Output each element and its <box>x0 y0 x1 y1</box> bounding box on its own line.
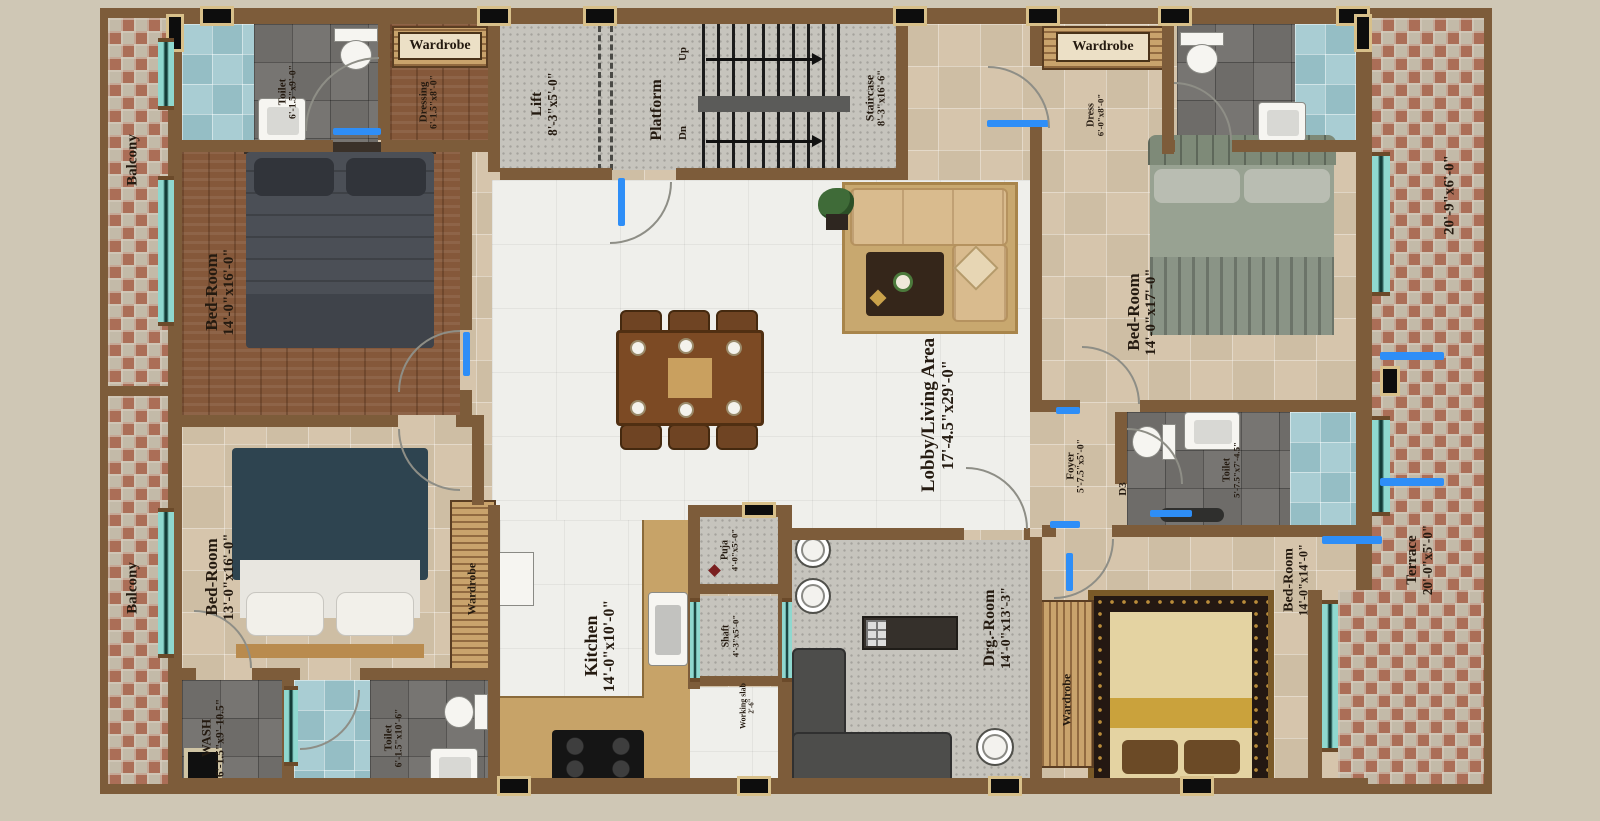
wall-puja-shaft-divider <box>688 584 788 594</box>
wall-toilet-tl-bottom <box>182 140 333 152</box>
door-swing-arc <box>988 66 1050 128</box>
dining-plate <box>726 340 742 356</box>
window <box>158 508 174 658</box>
room-name: Wardrobe <box>1060 674 1073 726</box>
bed-pillow <box>1154 169 1240 203</box>
floor-plan: Balcony Balcony Toilet 6'-1.5"x9'-0" War… <box>0 0 1600 821</box>
dining-plate <box>678 402 694 418</box>
bed-pillow <box>336 592 414 636</box>
bed-bottom-right <box>1088 590 1274 790</box>
door-marker <box>1056 407 1080 414</box>
puja-label: Puja 4'-0"x5'-0" <box>719 529 740 572</box>
terrace-door-lintel <box>1380 366 1400 396</box>
plant-pot <box>826 214 848 230</box>
wash-label: WASH 6'-1.5"x9'-10.5" <box>199 699 226 777</box>
dining-plate <box>726 400 742 416</box>
door-lintel <box>497 776 531 796</box>
wardrobe-bottom-right-label: Wardrobe <box>1060 674 1073 726</box>
bed-base <box>236 644 424 658</box>
room-dims: 20'-0"x5'-0" <box>1421 525 1436 595</box>
wall-liftrow-bottom <box>500 168 612 180</box>
door-lintel <box>1180 776 1214 796</box>
room-dims: 5'-7.5"x7'-4.5" <box>1233 442 1243 498</box>
room-name: Platform <box>648 79 666 140</box>
door-lintel <box>477 6 511 26</box>
room-name: Terrace <box>1404 525 1421 595</box>
dining-plate <box>678 338 694 354</box>
shaft-window <box>782 598 792 682</box>
toilet-top-left-shower-floor <box>182 24 254 142</box>
door-lintel <box>1354 14 1372 52</box>
wall-liftrow-bottom <box>676 168 908 180</box>
room-name: Staircase <box>863 70 876 126</box>
room-dims: 8'-3"x16'-6" <box>877 70 889 126</box>
wall-dress-toilet-tr-divider <box>1162 8 1174 154</box>
room-name: Bed-Room <box>202 533 221 620</box>
room-dims: 14'-0"x10'-0" <box>601 600 619 692</box>
toilet-bowl <box>444 696 474 728</box>
room-dims: 14'-0"x17'-0" <box>1143 268 1160 355</box>
toilet-right-label: Toilet 5'-7.5"x7'-4.5" <box>1221 442 1242 498</box>
staircase-label: Staircase 8'-3"x16'-6" <box>863 70 888 126</box>
platform-label: Platform <box>648 79 666 140</box>
room-name: Kitchen <box>581 600 601 692</box>
room-dims: 6'-1.5"x9'-10.5" <box>214 699 227 777</box>
terrace-label: Terrace 20'-0"x5'-0" <box>1404 525 1436 595</box>
toilet-tank <box>474 694 488 730</box>
wall-foyer-top <box>1140 400 1356 412</box>
stair-dn-label: Dn <box>677 126 689 140</box>
dining-plate <box>630 340 646 356</box>
bed-ribbed-blanket <box>1150 257 1334 335</box>
room-dims: 14'-0"x13'-3" <box>999 587 1015 669</box>
note-dims: 2'-6" <box>749 683 757 729</box>
stove <box>552 730 644 784</box>
wall-terrace-cap <box>1368 784 1492 794</box>
room-name: Bed-Room <box>202 248 221 335</box>
wall-washrow-top <box>182 668 196 680</box>
door-swing-arc <box>398 429 460 491</box>
door-d3-label: D3 <box>1117 482 1129 495</box>
dress-top-right-label: Dress 6'-0"x8'-0" <box>1085 94 1106 137</box>
bed-pillow <box>1184 740 1240 774</box>
wall-foyer-toilet-divider <box>1115 412 1127 484</box>
toilet-right-shower-floor <box>1290 412 1356 525</box>
room-dims: 13'-0"x16'-0" <box>221 533 238 620</box>
door-marker <box>1380 352 1444 360</box>
bed-top-right <box>1148 135 1336 335</box>
wall-bedroom-br-east <box>1308 590 1322 792</box>
wall-kitchen-west <box>488 505 500 792</box>
door-code: D3 <box>1117 482 1129 495</box>
staircase-up-arrowhead <box>812 53 823 65</box>
foyer-label: Foyer 5'-7.5"x5'-0" <box>1064 439 1087 493</box>
wall-outer-left <box>168 8 182 794</box>
wall-outer-right <box>1356 8 1372 590</box>
staircase-up-arrow <box>706 58 814 61</box>
toilet-door-frame <box>284 686 298 766</box>
wall-bedrooms-left-divider <box>456 415 472 427</box>
wall-toilet-tl-bottom <box>381 140 492 152</box>
door-swing-arc <box>300 690 360 750</box>
bedroom-top-left-label: Bed-Room 14'-0"x16'-0" <box>202 248 238 335</box>
dn-text: Dn <box>677 126 689 140</box>
wall-drg-top <box>792 528 964 540</box>
room-dims: 5'-7.5"x5'-0" <box>1077 439 1088 493</box>
basin <box>1267 110 1299 136</box>
terrace-notch-floor <box>1338 590 1484 784</box>
lift-door-dashed-line <box>610 26 613 170</box>
toilet-bowl <box>1186 44 1218 74</box>
wall-bedroom-tl-east <box>460 152 472 330</box>
staircase-landing-bar <box>698 96 850 112</box>
lobby-living-label: Lobby/Living Area 17'-4.5"x29'-0" <box>918 338 958 492</box>
wall-terrace-cap <box>1368 8 1492 18</box>
wall-toilet-tr-bottom <box>1232 140 1356 152</box>
wall-terrace-outer <box>1484 8 1492 794</box>
room-name: Bed-Room <box>1124 268 1143 355</box>
dining-chair <box>716 424 758 450</box>
ceiling-light <box>795 578 831 614</box>
wall-washrow-top <box>360 668 488 680</box>
door-swing-arc <box>1174 82 1232 140</box>
bedroom-top-right-label: Bed-Room 14'-0"x17'-0" <box>1124 268 1160 355</box>
wall-dressing-lift-divider <box>488 8 500 172</box>
door-lintel <box>988 776 1022 796</box>
room-dims: 6'-1.5"x10'-6" <box>395 709 406 768</box>
staircase-dn-arrow <box>706 140 814 143</box>
wall-bedroom-bl-east-stub <box>472 415 484 505</box>
room-name: Wardrobe <box>409 38 470 54</box>
balcony-bottom-label: Balcony <box>125 562 142 614</box>
lift-door-dashed-line <box>598 26 601 170</box>
door-lintel <box>583 6 617 26</box>
wall-drg-bedroom-br-divider <box>1030 537 1042 792</box>
dining-chair <box>668 424 710 450</box>
drawing-room-label: Drg.-Room 14'-0"x13'-3" <box>981 587 1015 669</box>
bed-pillow <box>246 592 324 636</box>
wall-balcony-cap <box>100 784 168 794</box>
area-dims: 20'-9"x6'-0" <box>1442 155 1459 235</box>
door-swing-arc <box>610 182 672 244</box>
wall-lobby-bedroom-tr <box>1030 126 1042 412</box>
door-lintel <box>742 502 776 518</box>
sink-basin <box>655 605 681 655</box>
window <box>158 176 174 326</box>
dining-table-runner <box>668 358 712 398</box>
door-marker <box>463 332 470 376</box>
room-name: Wardrobe <box>1072 39 1133 55</box>
terrace-upper-label: 20'-9"x6'-0" <box>1442 155 1459 235</box>
window <box>1372 416 1390 516</box>
coffee-table-decor <box>893 272 913 292</box>
lift-label: Lift 8'-3"x5'-0" <box>529 72 561 136</box>
ceiling-light <box>976 728 1014 766</box>
shaft-window <box>690 598 700 682</box>
stair-up-label: Up <box>677 47 689 61</box>
basin <box>1194 420 1232 444</box>
door-swing-arc <box>966 467 1028 529</box>
toilet-bottom-left-label: Toilet 6'-1.5"x10'-6" <box>382 709 405 768</box>
bedroom-bottom-left-label: Bed-Room 13'-0"x16'-0" <box>202 533 238 620</box>
dressing-top-left-label: Dressing 6'-1.5"x8'-0" <box>417 75 440 129</box>
bar-counter-grid <box>866 620 886 646</box>
door-marker <box>1322 536 1382 544</box>
bedroom-bottom-right-label: Bed-Room 14'-0"x14'-0" <box>1281 544 1310 616</box>
bed-pillow <box>1244 169 1330 203</box>
door-swing-arc <box>398 330 460 392</box>
wardrobe-bottom-left-label: Wardrobe <box>465 563 478 615</box>
door-swing-arc <box>305 57 379 131</box>
bed-pillow <box>346 158 426 196</box>
living-sofa-top <box>850 188 1008 246</box>
room-name: Drg.-Room <box>981 587 999 669</box>
door-marker <box>1380 478 1444 486</box>
kitchen-label: Kitchen 14'-0"x10'-0" <box>581 600 619 692</box>
door-swing-arc <box>1054 539 1114 599</box>
wall-stair-right <box>896 8 908 180</box>
room-dims: 8'-3"x5'-0" <box>546 72 561 136</box>
door-marker <box>1150 510 1192 517</box>
shaft-label: Shaft 4'-3"x5'-0" <box>720 615 741 658</box>
room-dims: 6'-1.5"x9'-0" <box>289 65 300 119</box>
room-dims: 14'-0"x14'-0" <box>1297 544 1311 616</box>
working-slab-label: Working slab 2'-6" <box>740 683 757 729</box>
room-name: Wardrobe <box>465 563 478 615</box>
wall-toilet-dressing-divider <box>378 8 390 140</box>
door-marker <box>1050 521 1080 528</box>
utility-floor <box>688 687 780 778</box>
window <box>1372 152 1390 296</box>
door-lintel <box>1158 6 1192 26</box>
room-name: Balcony <box>125 134 142 186</box>
door-lintel <box>737 776 771 796</box>
room-dims: 17'-4.5"x29'-0" <box>939 338 958 492</box>
wall-balcony-cap <box>100 8 168 18</box>
room-dims: 4'-3"x5'-0" <box>732 615 742 658</box>
toilet-top-left-label: Toilet 6'-1.5"x9'-0" <box>276 65 299 119</box>
bed-runner <box>1110 698 1252 728</box>
window <box>1322 600 1338 752</box>
bed-pillow <box>1122 740 1178 774</box>
wall-washrow-top <box>252 668 300 680</box>
wall-foyer-bottom <box>1112 525 1356 537</box>
wall-balcony-divider <box>100 386 168 396</box>
door-lintel <box>200 6 234 26</box>
dining-plate <box>630 400 646 416</box>
wall-bedrooms-left-divider <box>182 415 398 427</box>
door-lintel <box>1026 6 1060 26</box>
room-dims: 6'-1.5"x8'-0" <box>430 75 441 129</box>
room-dims: 14'-0"x16'-0" <box>221 248 238 335</box>
dining-chair <box>620 424 662 450</box>
door-lintel <box>893 6 927 26</box>
wardrobe-top-right-label: Wardrobe <box>1056 32 1150 62</box>
refrigerator <box>498 552 534 606</box>
balcony-top-label: Balcony <box>125 134 142 186</box>
room-dims: 4'-0"x5'-0" <box>731 529 741 572</box>
wall-toilet-tr-bottom <box>1165 140 1175 152</box>
room-dims: 6'-0"x8'-0" <box>1097 94 1107 137</box>
washbasin <box>1258 102 1306 142</box>
kitchen-sink <box>648 592 688 666</box>
staircase-dn-arrowhead <box>812 135 823 147</box>
door-swing-arc <box>1127 428 1183 484</box>
bed-top-left <box>244 142 436 350</box>
bed-pillow <box>254 158 334 196</box>
room-name: Lift <box>529 72 546 136</box>
room-name: Lobby/Living Area <box>918 338 939 492</box>
wardrobe-top-left-label: Wardrobe <box>398 32 482 60</box>
window <box>158 38 174 110</box>
room-name: Balcony <box>125 562 142 614</box>
wall-balcony-outer <box>100 8 108 794</box>
room-name: WASH <box>199 699 214 777</box>
room-name: Bed-Room <box>1281 544 1297 616</box>
up-text: Up <box>677 47 689 61</box>
